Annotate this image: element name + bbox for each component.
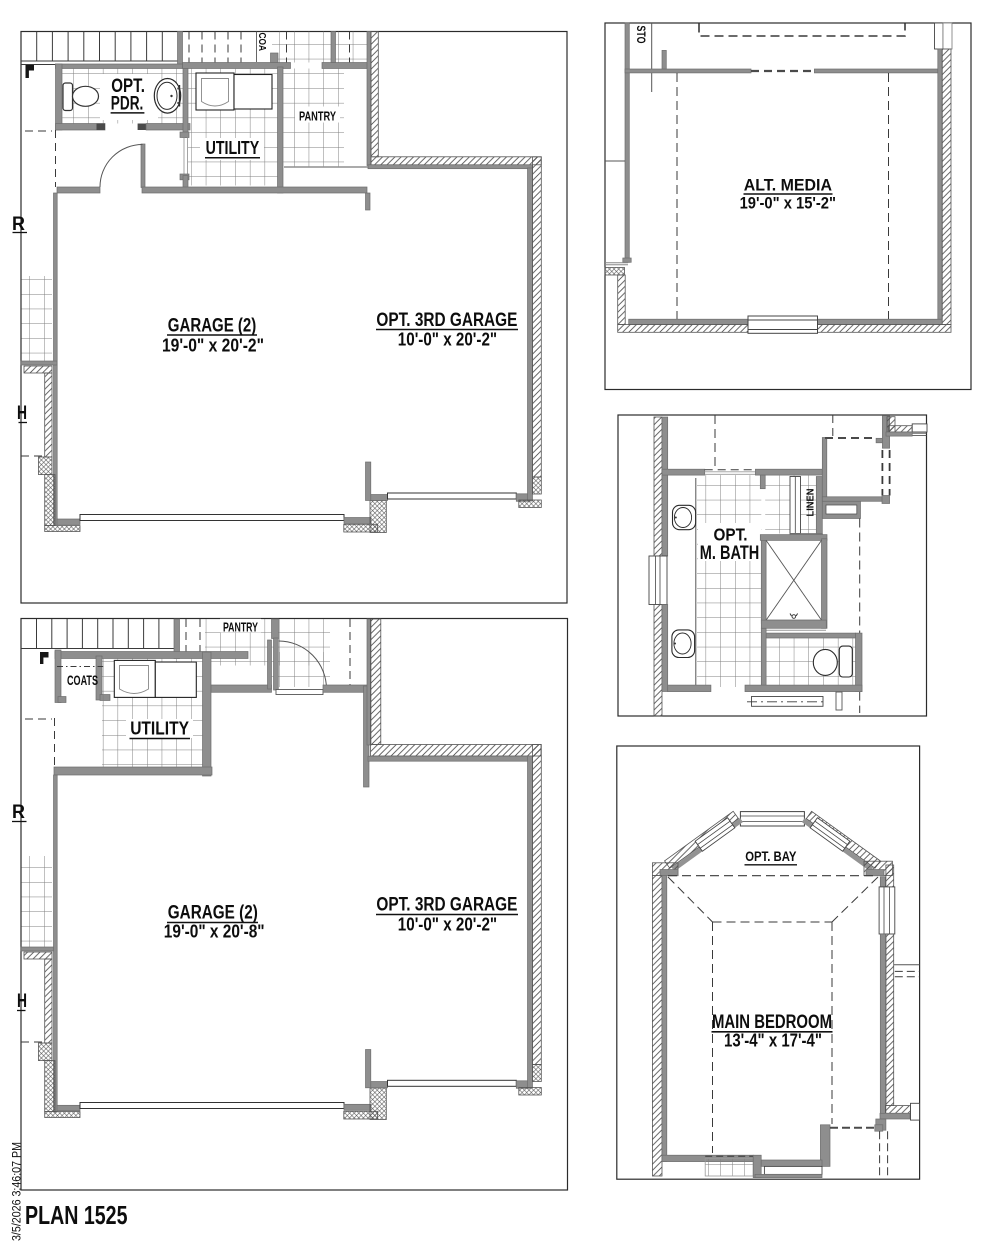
svg-text:PDR.: PDR. (111, 93, 144, 114)
svg-text:OPT. 3RD GARAGE: OPT. 3RD GARAGE (376, 309, 517, 331)
svg-text:10'-0" x 20'-2": 10'-0" x 20'-2" (398, 914, 497, 935)
svg-text:R: R (12, 802, 25, 823)
svg-text:PANTRY: PANTRY (299, 109, 336, 124)
svg-text:OPT.: OPT. (714, 524, 748, 544)
svg-text:GARAGE (2): GARAGE (2) (168, 315, 256, 337)
svg-text:M. BATH: M. BATH (700, 543, 760, 564)
svg-text:LINEN: LINEN (805, 489, 817, 517)
svg-text:OPT. 3RD GARAGE: OPT. 3RD GARAGE (376, 894, 517, 916)
svg-text:13'-4" x 17'-4": 13'-4" x 17'-4" (724, 1031, 822, 1051)
svg-text:OPT. BAY: OPT. BAY (745, 849, 796, 864)
svg-text:19'-0" x 15'-2": 19'-0" x 15'-2" (740, 194, 836, 213)
svg-text:STO: STO (634, 26, 646, 44)
svg-text:19'-0" x 20'-8": 19'-0" x 20'-8" (164, 921, 265, 942)
svg-text:PLAN 1525: PLAN 1525 (25, 1200, 128, 1230)
svg-text:UTILITY: UTILITY (206, 137, 260, 158)
svg-text:ALT. MEDIA: ALT. MEDIA (744, 176, 832, 195)
svg-text:10'-0" x 20'-2": 10'-0" x 20'-2" (398, 329, 497, 350)
svg-text:COA: COA (256, 33, 268, 52)
svg-text:H: H (17, 991, 27, 1012)
svg-text:PANTRY: PANTRY (223, 620, 258, 635)
svg-text:UTILITY: UTILITY (130, 718, 189, 739)
svg-text:19'-0" x 20'-2": 19'-0" x 20'-2" (162, 335, 264, 356)
svg-text:3/5/2026 3:46:07 PM: 3/5/2026 3:46:07 PM (12, 1142, 24, 1241)
svg-text:H: H (17, 403, 27, 424)
svg-text:COATS: COATS (67, 672, 98, 688)
